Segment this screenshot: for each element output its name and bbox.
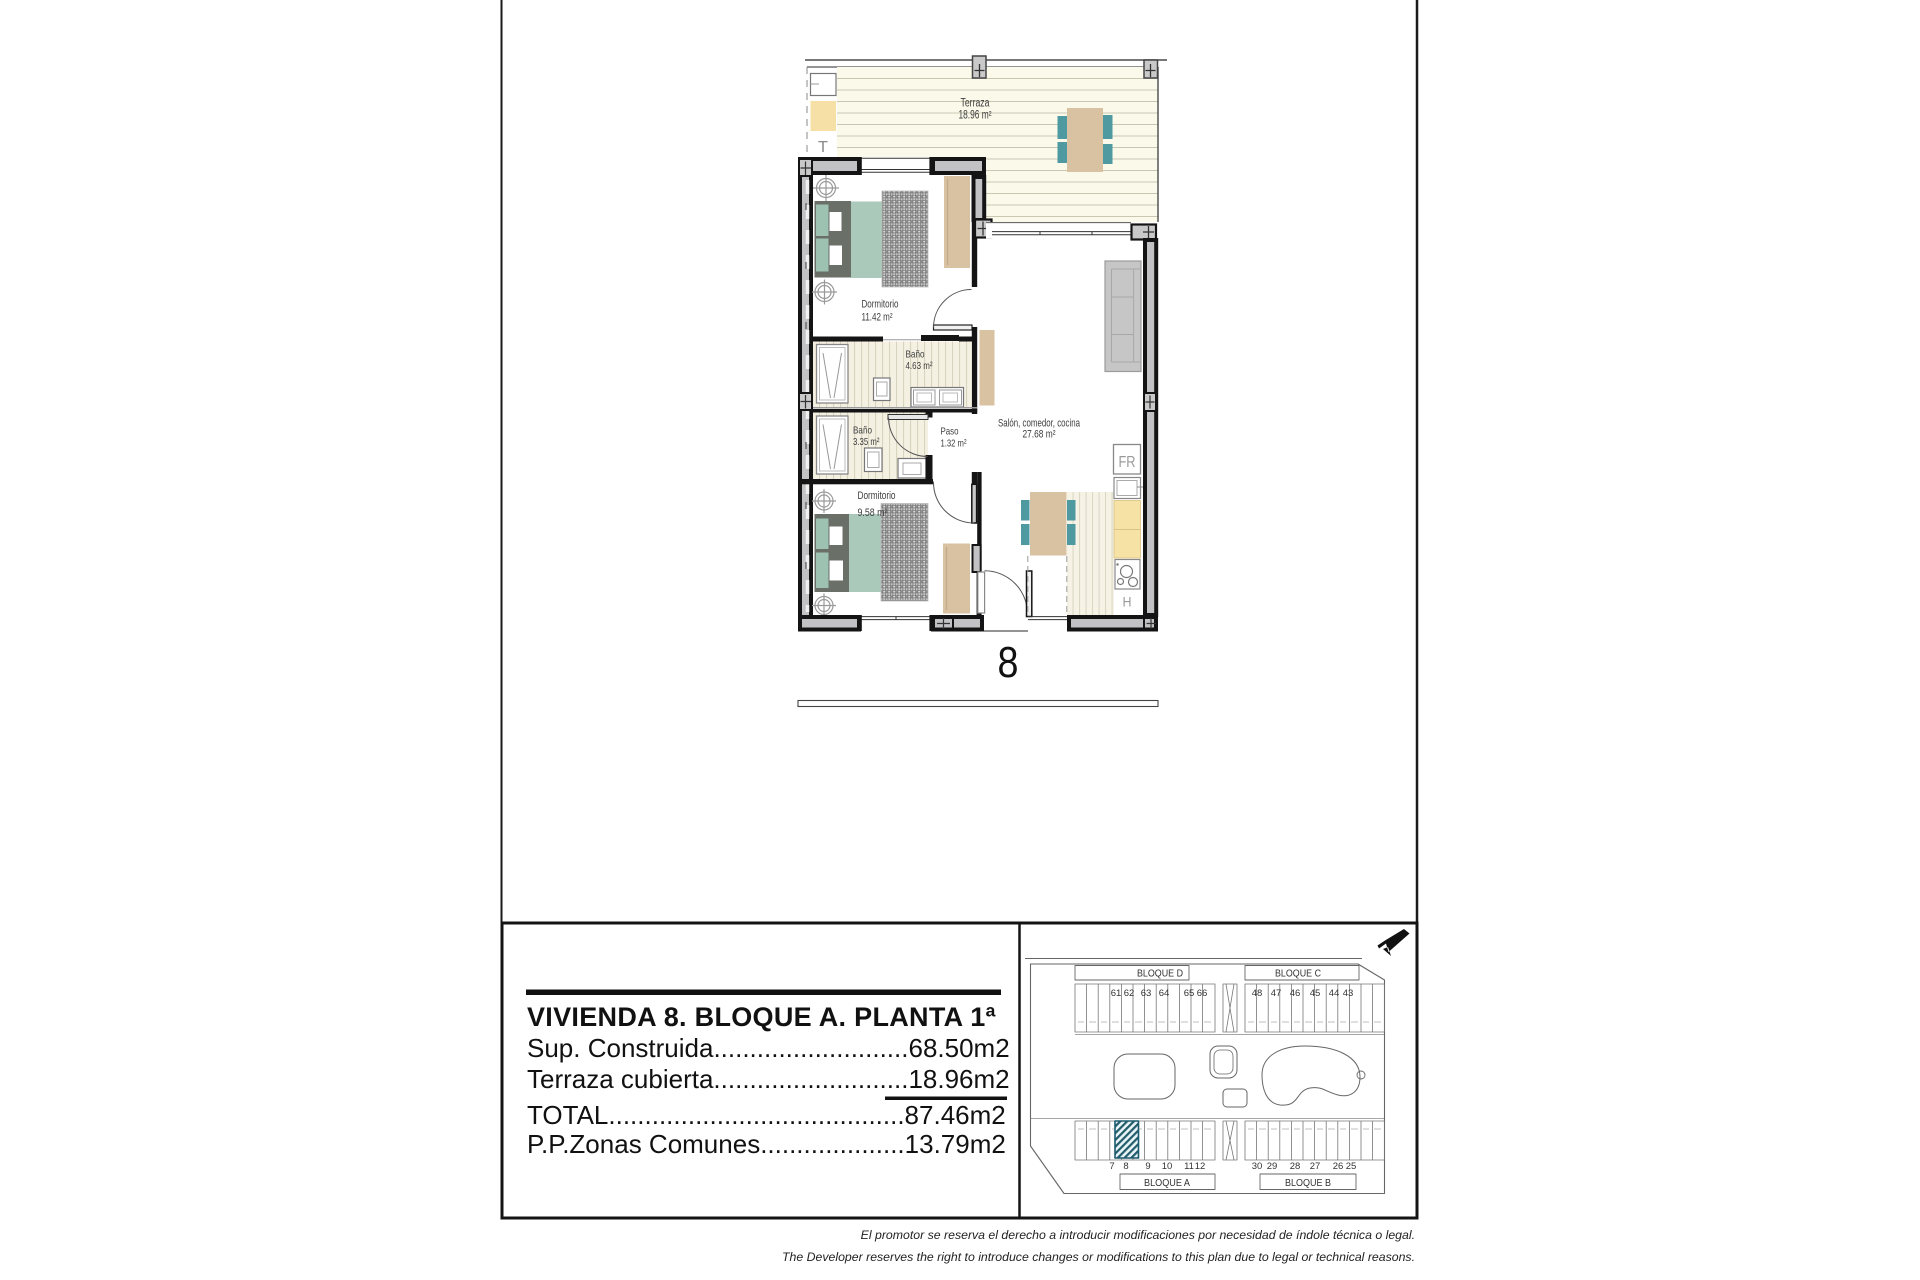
- svg-text:Sup. Construida...............: Sup. Construida.........................…: [527, 1033, 1010, 1063]
- svg-text:Baño: Baño: [906, 349, 925, 361]
- svg-text:45: 45: [1310, 988, 1321, 999]
- svg-text:Baño: Baño: [853, 425, 872, 437]
- svg-text:10: 10: [1162, 1161, 1173, 1172]
- svg-text:9.58 m²: 9.58 m²: [858, 507, 888, 519]
- svg-text:28: 28: [1290, 1161, 1301, 1172]
- svg-text:BLOQUE D: BLOQUE D: [1137, 968, 1183, 980]
- svg-text:P.P.Zonas Comunes.............: P.P.Zonas Comunes....................13.…: [527, 1129, 1006, 1159]
- svg-text:26: 26: [1333, 1161, 1344, 1172]
- svg-text:27.68 m²: 27.68 m²: [1023, 429, 1056, 441]
- svg-text:48: 48: [1252, 988, 1263, 999]
- svg-text:44: 44: [1329, 988, 1340, 999]
- svg-text:Dormitorio: Dormitorio: [858, 490, 896, 502]
- svg-text:BLOQUE B: BLOQUE B: [1285, 1177, 1331, 1189]
- svg-text:1.32 m²: 1.32 m²: [941, 438, 967, 450]
- svg-text:29: 29: [1267, 1161, 1278, 1172]
- svg-text:43: 43: [1343, 988, 1354, 999]
- svg-text:9: 9: [1145, 1161, 1150, 1172]
- svg-text:11.42 m²: 11.42 m²: [862, 312, 893, 324]
- svg-text:3.35 m²: 3.35 m²: [853, 436, 880, 448]
- svg-text:Terraza: Terraza: [961, 98, 990, 110]
- svg-text:27: 27: [1310, 1161, 1321, 1172]
- svg-text:64: 64: [1159, 988, 1170, 999]
- svg-text:11: 11: [1184, 1161, 1194, 1172]
- svg-text:7: 7: [1109, 1161, 1114, 1172]
- svg-text:El promotor se reserva el dere: El promotor se reserva el derecho a intr…: [861, 1228, 1415, 1242]
- svg-text:46: 46: [1290, 988, 1301, 999]
- svg-text:Dormitorio: Dormitorio: [862, 299, 899, 311]
- svg-text:47: 47: [1271, 988, 1282, 999]
- svg-text:4.63 m²: 4.63 m²: [906, 360, 933, 372]
- svg-text:63: 63: [1141, 988, 1152, 999]
- svg-text:62: 62: [1124, 988, 1135, 999]
- svg-text:25: 25: [1346, 1161, 1357, 1172]
- svg-text:65: 65: [1184, 988, 1195, 999]
- svg-text:VIVIENDA 8. BLOQUE A. PLANTA 1: VIVIENDA 8. BLOQUE A. PLANTA 1ª: [527, 1002, 996, 1032]
- svg-text:T: T: [818, 139, 828, 156]
- svg-text:18.96 m²: 18.96 m²: [959, 110, 992, 122]
- svg-text:The Developer reserves the rig: The Developer reserves the right to intr…: [782, 1250, 1415, 1264]
- svg-text:TOTAL.........................: TOTAL...................................…: [527, 1100, 1006, 1130]
- svg-text:H: H: [1123, 594, 1132, 610]
- svg-text:Paso: Paso: [941, 426, 959, 438]
- svg-text:BLOQUE A: BLOQUE A: [1144, 1177, 1190, 1189]
- svg-text:66: 66: [1197, 988, 1208, 999]
- svg-text:8: 8: [998, 638, 1019, 687]
- svg-text:61: 61: [1111, 988, 1122, 999]
- svg-text:8: 8: [1123, 1161, 1128, 1172]
- svg-text:Terraza cubierta..............: Terraza cubierta........................…: [527, 1064, 1010, 1094]
- svg-text:FR: FR: [1119, 454, 1136, 471]
- svg-text:30: 30: [1252, 1161, 1263, 1172]
- svg-text:12: 12: [1195, 1161, 1206, 1172]
- svg-text:BLOQUE C: BLOQUE C: [1275, 968, 1321, 980]
